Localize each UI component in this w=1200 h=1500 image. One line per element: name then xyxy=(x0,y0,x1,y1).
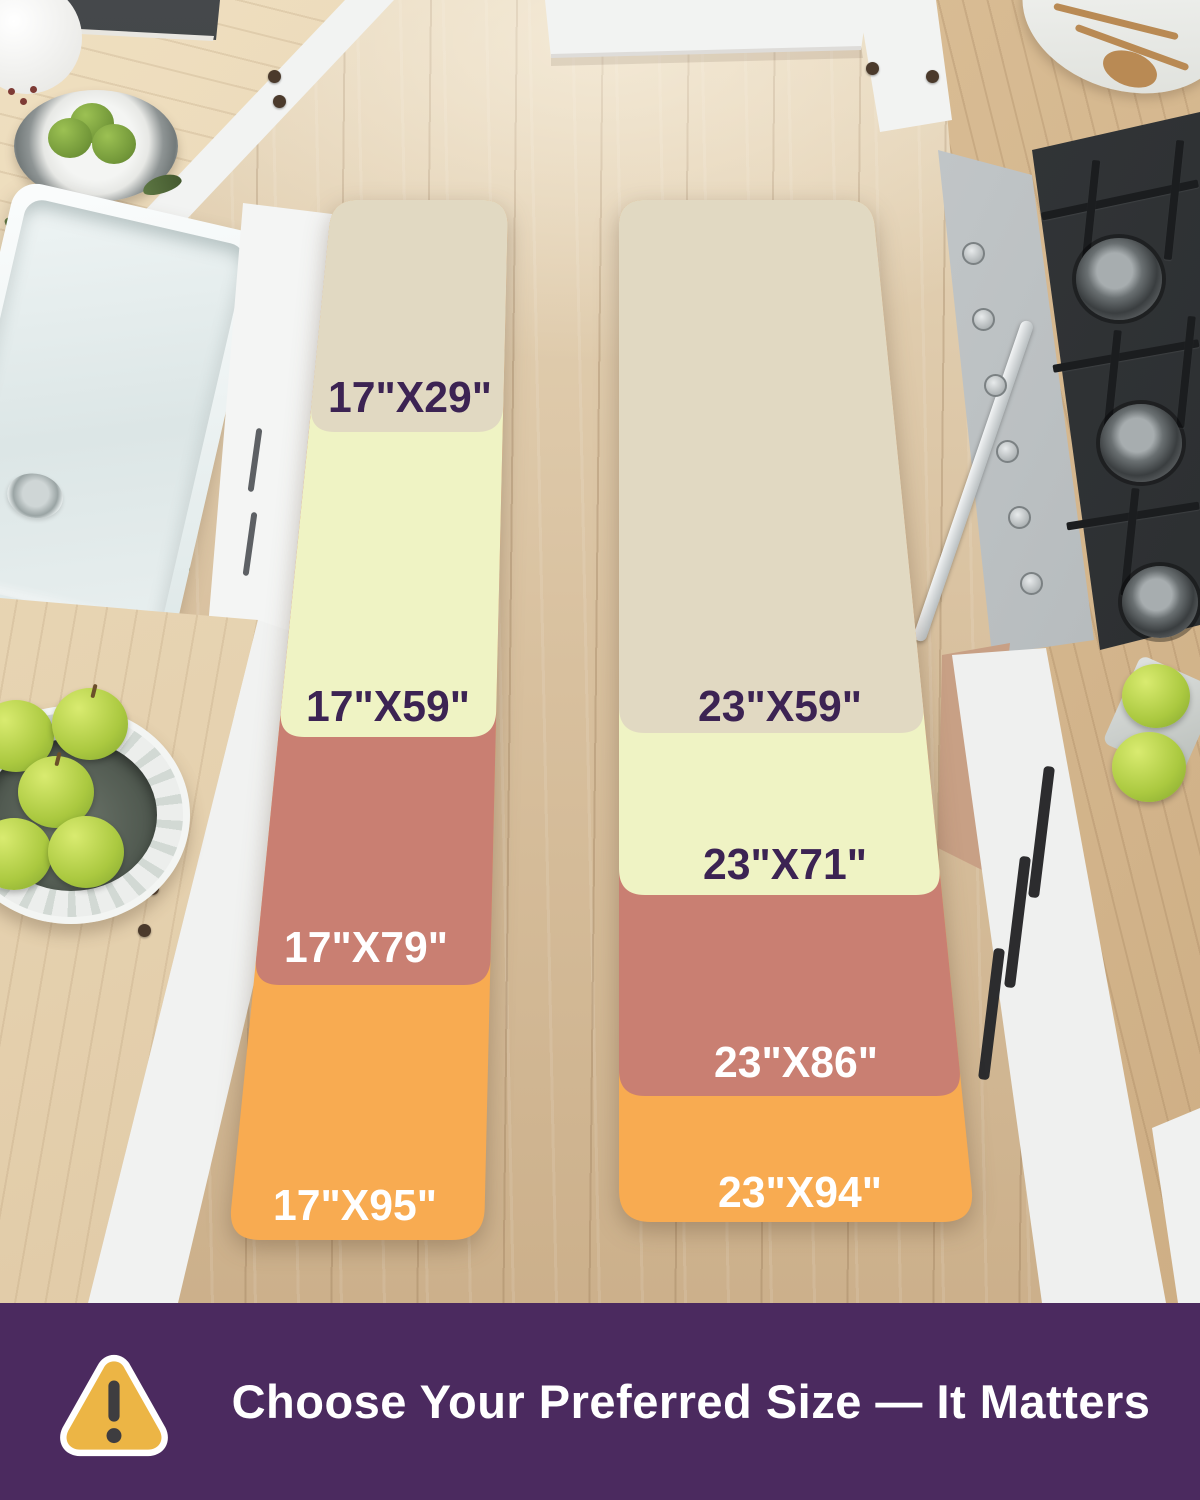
mat-size-label: 17"X79" xyxy=(284,923,448,973)
size-chart-overlay xyxy=(0,0,1200,1500)
product-image: 17"X29" 17"X59" 17"X79" 17"X95" 23"X59" … xyxy=(0,0,1200,1500)
mat-size-label: 23"X59" xyxy=(698,682,862,732)
notice-banner: Choose Your Preferred Size — It Matters xyxy=(0,1303,1200,1500)
mat-size-label: 23"X94" xyxy=(718,1168,882,1218)
banner-title: Choose Your Preferred Size — It Matters xyxy=(212,1374,1200,1429)
mat-size-label: 17"X29" xyxy=(328,373,492,423)
mat-23x59 xyxy=(619,200,923,733)
mat-size-label: 17"X95" xyxy=(273,1181,437,1231)
warning-exclamation-bar xyxy=(108,1380,119,1421)
mat-size-label: 23"X71" xyxy=(703,840,867,890)
mat-size-label: 23"X86" xyxy=(714,1038,878,1088)
warning-triangle-icon xyxy=(58,1345,170,1459)
warning-exclamation-dot xyxy=(107,1428,122,1443)
mat-size-label: 17"X59" xyxy=(306,682,470,732)
